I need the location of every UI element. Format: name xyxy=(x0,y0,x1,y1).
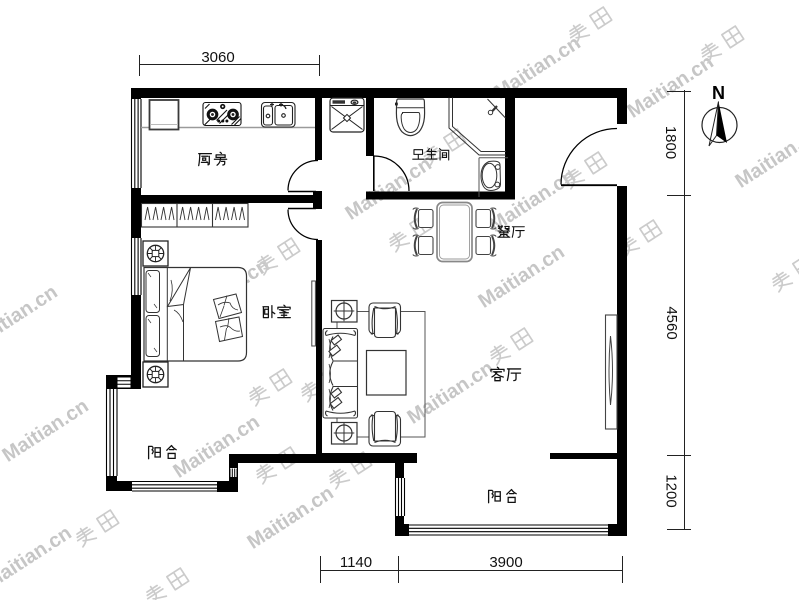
svg-text:3060: 3060 xyxy=(201,49,234,66)
svg-text:N: N xyxy=(712,83,725,103)
svg-text:1800: 1800 xyxy=(662,126,679,159)
svg-text:4560: 4560 xyxy=(663,306,680,339)
svg-text:1140: 1140 xyxy=(340,554,372,571)
svg-text:3900: 3900 xyxy=(489,554,522,571)
svg-text:1200: 1200 xyxy=(663,474,680,507)
